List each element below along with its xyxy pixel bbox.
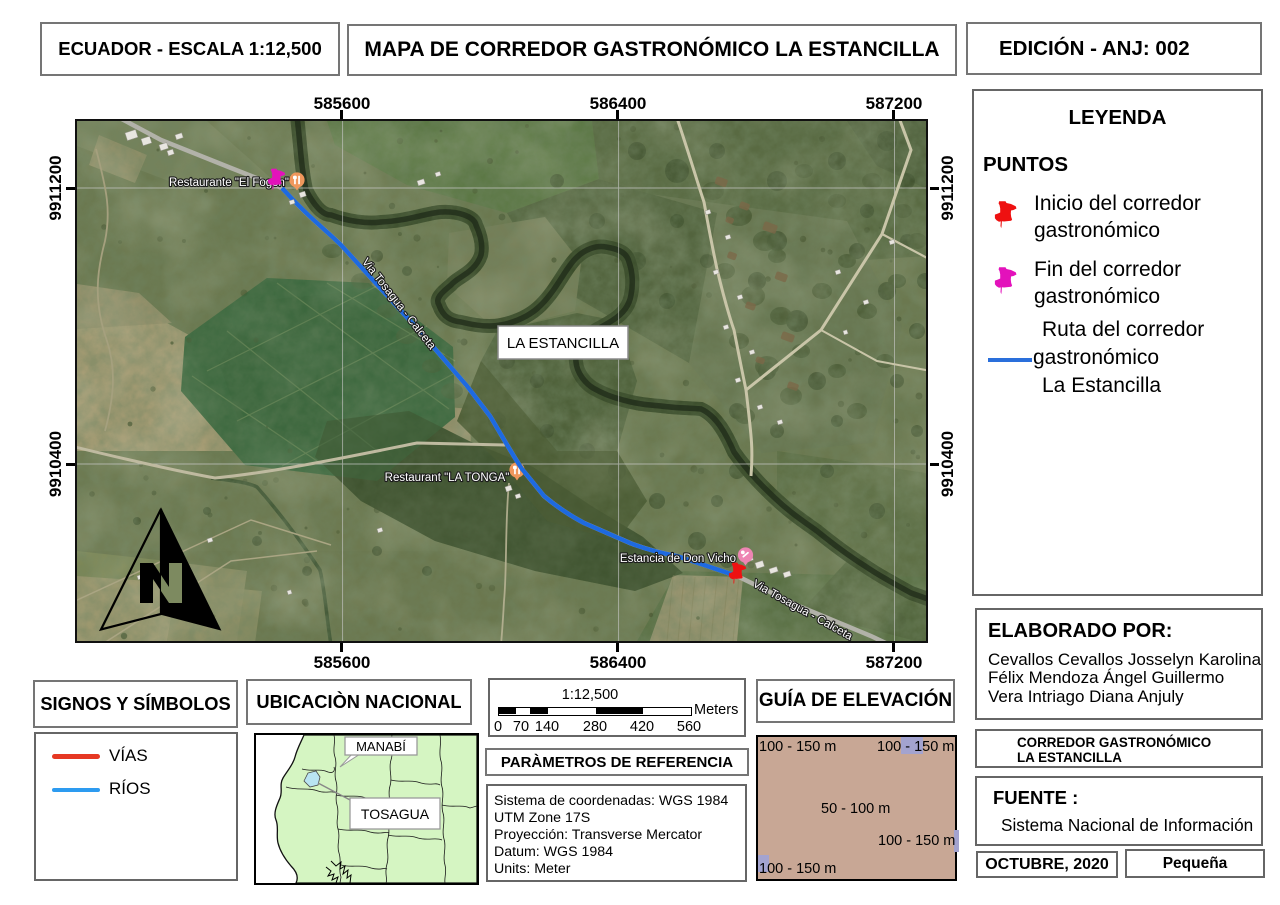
svg-text:MANABÍ: MANABÍ [356, 739, 406, 754]
svg-text:Estancia de Don Vicho: Estancia de Don Vicho [620, 553, 736, 565]
svg-text:TOSAGUA: TOSAGUA [361, 806, 430, 822]
svg-text:LA ESTANCILLA: LA ESTANCILLA [507, 335, 619, 352]
svg-text:Restaurant "LA TONGA": Restaurant "LA TONGA" [385, 472, 510, 484]
